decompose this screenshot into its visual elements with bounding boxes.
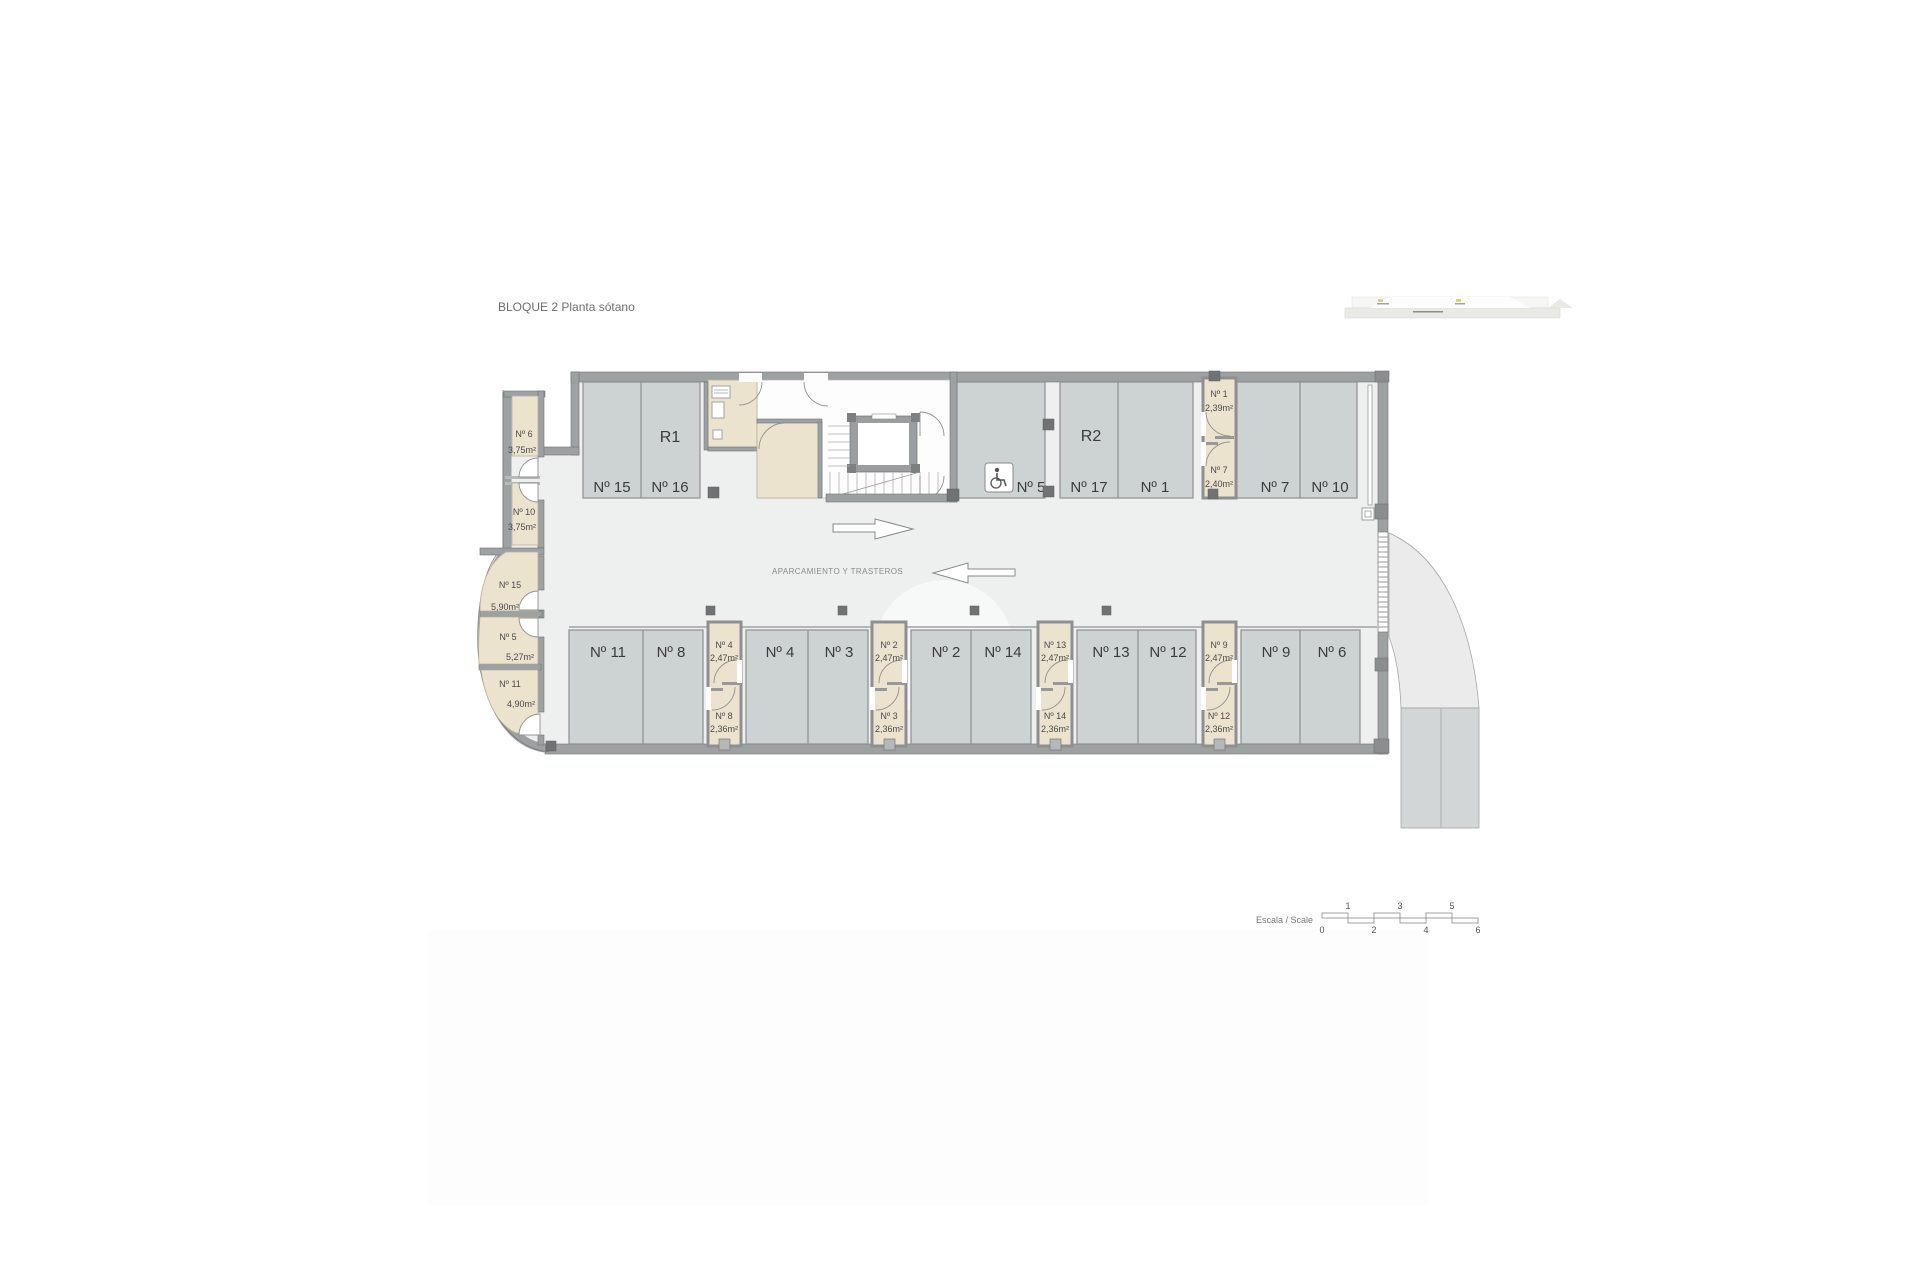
zone-label-r2: R2 [1081, 428, 1102, 445]
storage-label: Nº 13 [1044, 640, 1066, 650]
storage-box: Nº 9 2,47m² Nº 12 2,36m² [1201, 622, 1237, 750]
stall-label: Nº 10 [1311, 479, 1348, 496]
scale-tick: 3 [1397, 901, 1402, 911]
storage-box: Nº 13 2,47m² Nº 14 2,36m² [1036, 622, 1073, 750]
storage-label: Nº 7 [1210, 465, 1227, 475]
elevator [847, 413, 920, 473]
stall-label: Nº 2 [932, 644, 961, 661]
stall-label: Nº 8 [657, 644, 686, 661]
core-south-wall [826, 494, 957, 502]
storage-label: Nº 4 [715, 640, 732, 650]
key-plan-strip [1345, 297, 1573, 318]
storage-label: Nº 15 [499, 580, 521, 590]
storage-area: 2,40m² [1205, 479, 1233, 489]
stall-label: Nº 17 [1070, 479, 1107, 496]
storage-label: Nº 11 [499, 679, 521, 689]
scale-tick: 2 [1371, 925, 1376, 935]
stall-label: Nº 11 [590, 644, 626, 661]
wall-right-lower [1378, 632, 1388, 754]
stall-label: Nº 4 [766, 644, 795, 661]
storage-label: Nº 1 [1210, 389, 1227, 399]
storage-label: Nº 12 [1208, 711, 1230, 721]
storage-label: Nº 10 [513, 507, 535, 517]
scale-label: Escala / Scale [1256, 915, 1313, 925]
wall-bottom [545, 744, 1388, 754]
utility-symbol [1362, 508, 1374, 520]
storage-label: Nº 5 [499, 632, 516, 642]
area-label: APARCAMIENTO Y TRASTEROS [772, 567, 903, 576]
stall-label: Nº 3 [825, 644, 854, 661]
sink-fixture [712, 386, 730, 398]
storage-box-top: Nº 1 2,39m² Nº 7 2,40m² [1201, 378, 1236, 498]
faint-background-band [428, 930, 1428, 1205]
stall-label: Nº 9 [1262, 644, 1291, 661]
toilet-fixture [712, 402, 724, 418]
stall-label: Nº 12 [1149, 644, 1186, 661]
stall-label: Nº 5 [1017, 479, 1046, 496]
scale-tick: 4 [1423, 925, 1428, 935]
storage-area: 2,47m² [875, 653, 903, 663]
storage-area: 5,90m² [491, 602, 519, 612]
wall-storage-east [538, 391, 544, 745]
core-east-wall [950, 372, 957, 502]
storage-area: 3,75m² [508, 522, 536, 532]
storage-label: Nº 3 [880, 711, 897, 721]
storage-rooms-left: Nº 6 3,75m² Nº 10 3,75m² Nº 15 5,90m² Nº… [479, 396, 540, 735]
storage-box: Nº 4 2,47m² Nº 8 2,36m² [706, 622, 742, 750]
storage-area: 2,47m² [710, 653, 738, 663]
stall-label: Nº 1 [1141, 479, 1170, 496]
storage-label: Nº 2 [880, 640, 897, 650]
storage-label: Nº 8 [715, 711, 732, 721]
storage-box: Nº 2 2,47m² Nº 3 2,36m² [870, 622, 907, 750]
lobby-room [757, 422, 822, 498]
ramp-road [1401, 708, 1479, 828]
storage-area: 2,36m² [1205, 724, 1233, 734]
storage-area: 4,90m² [507, 699, 535, 709]
scale-tick: 5 [1449, 901, 1454, 911]
stall-label: Nº 6 [1318, 644, 1347, 661]
plan-title: BLOQUE 2 Planta sótano [498, 300, 635, 314]
key-plan-building-outline [1370, 297, 1530, 308]
storage-area: 5,27m² [506, 652, 534, 662]
key-plan-highlight-left [1378, 299, 1383, 302]
storage-label: Nº 6 [515, 429, 532, 439]
storage-label: Nº 14 [1044, 711, 1066, 721]
parking-row-top: Nº 15 Nº 16 Nº 5 Nº 17 Nº 1 Nº 7 Nº 10 R… [583, 382, 1357, 498]
storage-area: 2,36m² [710, 724, 738, 734]
stall-label: Nº 16 [651, 479, 688, 496]
wall-divider-5-11 [479, 664, 541, 670]
stall-label: Nº 13 [1092, 644, 1129, 661]
storage-area: 2,47m² [1041, 653, 1069, 663]
key-plan-highlight-right [1456, 299, 1461, 302]
storage-label: Nº 9 [1210, 640, 1227, 650]
stall-label: Nº 14 [984, 644, 1021, 661]
storage-area: 2,36m² [875, 724, 903, 734]
scale-tick: 0 [1319, 925, 1324, 935]
floor-plan-page: BLOQUE 2 Planta sótano [0, 0, 1920, 1280]
zone-label-r1: R1 [660, 429, 681, 446]
entry-ramp [1389, 533, 1479, 828]
floor-plan-drawing: BLOQUE 2 Planta sótano [0, 0, 1920, 1280]
scale-tick: 1 [1345, 901, 1350, 911]
wheelchair-icon [985, 463, 1013, 492]
door-leaf [1368, 385, 1372, 505]
parking-row-bottom: Nº 11 Nº 8 Nº 4 Nº 3 Nº 2 Nº 14 Nº 13 Nº… [569, 627, 1377, 744]
storage-area: 2,47m² [1205, 653, 1233, 663]
storage-area: 3,75m² [508, 445, 536, 455]
ramp-curve [1389, 533, 1479, 708]
stall-label: Nº 15 [593, 479, 630, 496]
utility-fixture [713, 430, 722, 439]
storage-area: 2,36m² [1041, 724, 1069, 734]
scale-bar: Escala / Scale 0 1 2 3 4 5 6 [1256, 901, 1481, 935]
stall-label: Nº 7 [1261, 479, 1290, 496]
scale-tick: 6 [1475, 925, 1480, 935]
wall-top [571, 372, 1388, 382]
garage-gate [1378, 532, 1388, 632]
wall-west-notch [571, 372, 579, 455]
storage-area: 2,39m² [1205, 403, 1233, 413]
